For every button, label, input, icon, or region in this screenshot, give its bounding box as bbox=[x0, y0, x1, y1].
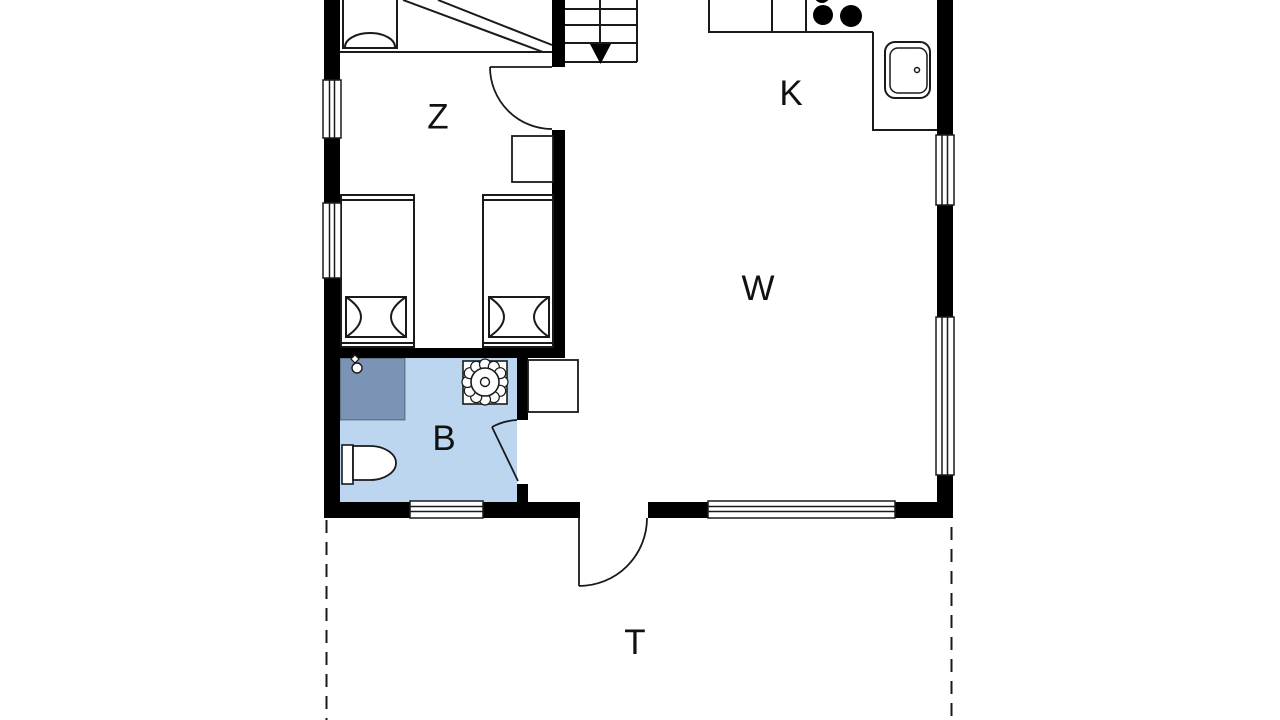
wall-bottom-3 bbox=[648, 502, 708, 518]
wall-bedroom-right-top bbox=[552, 0, 565, 67]
kitchen-sink-icon bbox=[885, 42, 930, 98]
shower-area bbox=[340, 358, 405, 420]
floor-plan-page: Z K W B T bbox=[0, 0, 1280, 720]
wall-left-bottom bbox=[324, 278, 340, 518]
plan-background bbox=[0, 0, 1280, 720]
wall-bathroom-right-bottom bbox=[517, 484, 528, 502]
window-right-living bbox=[936, 317, 954, 475]
bed-right bbox=[483, 195, 553, 347]
toilet-bowl bbox=[353, 446, 396, 480]
sink-basin bbox=[890, 48, 927, 93]
window-bathroom-bottom bbox=[410, 501, 483, 518]
bed-outline bbox=[343, 0, 397, 48]
room-label-kitchen: K bbox=[779, 74, 802, 113]
wall-bottom-2 bbox=[483, 502, 580, 518]
floor-plan-svg: Z K W B T bbox=[0, 0, 1280, 720]
wall-bathroom-right-top bbox=[517, 358, 528, 420]
hob-burner bbox=[840, 5, 862, 27]
washbasin-icon bbox=[462, 359, 508, 405]
room-label-bedroom: Z bbox=[427, 98, 448, 137]
nightstand bbox=[512, 136, 553, 182]
drain-circle bbox=[352, 363, 362, 373]
hob-burner bbox=[813, 5, 833, 25]
wall-left-mid bbox=[324, 138, 340, 203]
alcove-bed bbox=[343, 0, 397, 48]
wall-left-top bbox=[324, 0, 340, 80]
window-right-kitchen bbox=[936, 135, 954, 205]
window-living-bottom bbox=[708, 501, 895, 518]
room-label-bathroom: B bbox=[432, 419, 455, 458]
room-label-living-room: W bbox=[741, 269, 774, 308]
window-left-lower bbox=[323, 203, 341, 278]
room-label-terrace: T bbox=[624, 623, 645, 662]
window-left-upper bbox=[323, 80, 341, 138]
wall-right-mid bbox=[937, 205, 953, 317]
wall-right-top bbox=[937, 0, 953, 135]
bed-left bbox=[341, 195, 414, 347]
washbasin-drain bbox=[481, 378, 490, 387]
wall-bottom-1 bbox=[324, 502, 410, 518]
toilet-tank bbox=[342, 445, 353, 484]
wall-bottom-4 bbox=[895, 502, 953, 518]
cabinet bbox=[528, 360, 578, 412]
wall-bathroom-top bbox=[340, 348, 565, 358]
